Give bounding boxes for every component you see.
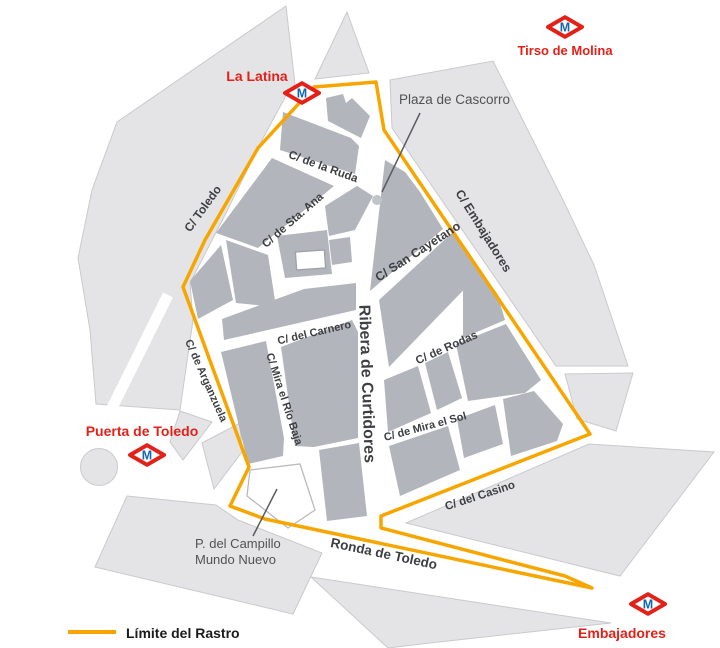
svg-text:La Latina: La Latina: [226, 68, 288, 84]
svg-text:Puerta de Toledo: Puerta de Toledo: [86, 423, 199, 439]
svg-text:Embajadores: Embajadores: [578, 625, 666, 641]
svg-text:Tirso de Molina: Tirso de Molina: [517, 43, 613, 58]
svg-text:P. del Campillo: P. del Campillo: [195, 536, 281, 551]
svg-text:Plaza de Cascorro: Plaza de Cascorro: [399, 92, 510, 107]
svg-text:Límite del Rastro: Límite del Rastro: [126, 625, 240, 641]
svg-text:Mundo Nuevo: Mundo Nuevo: [195, 552, 276, 567]
